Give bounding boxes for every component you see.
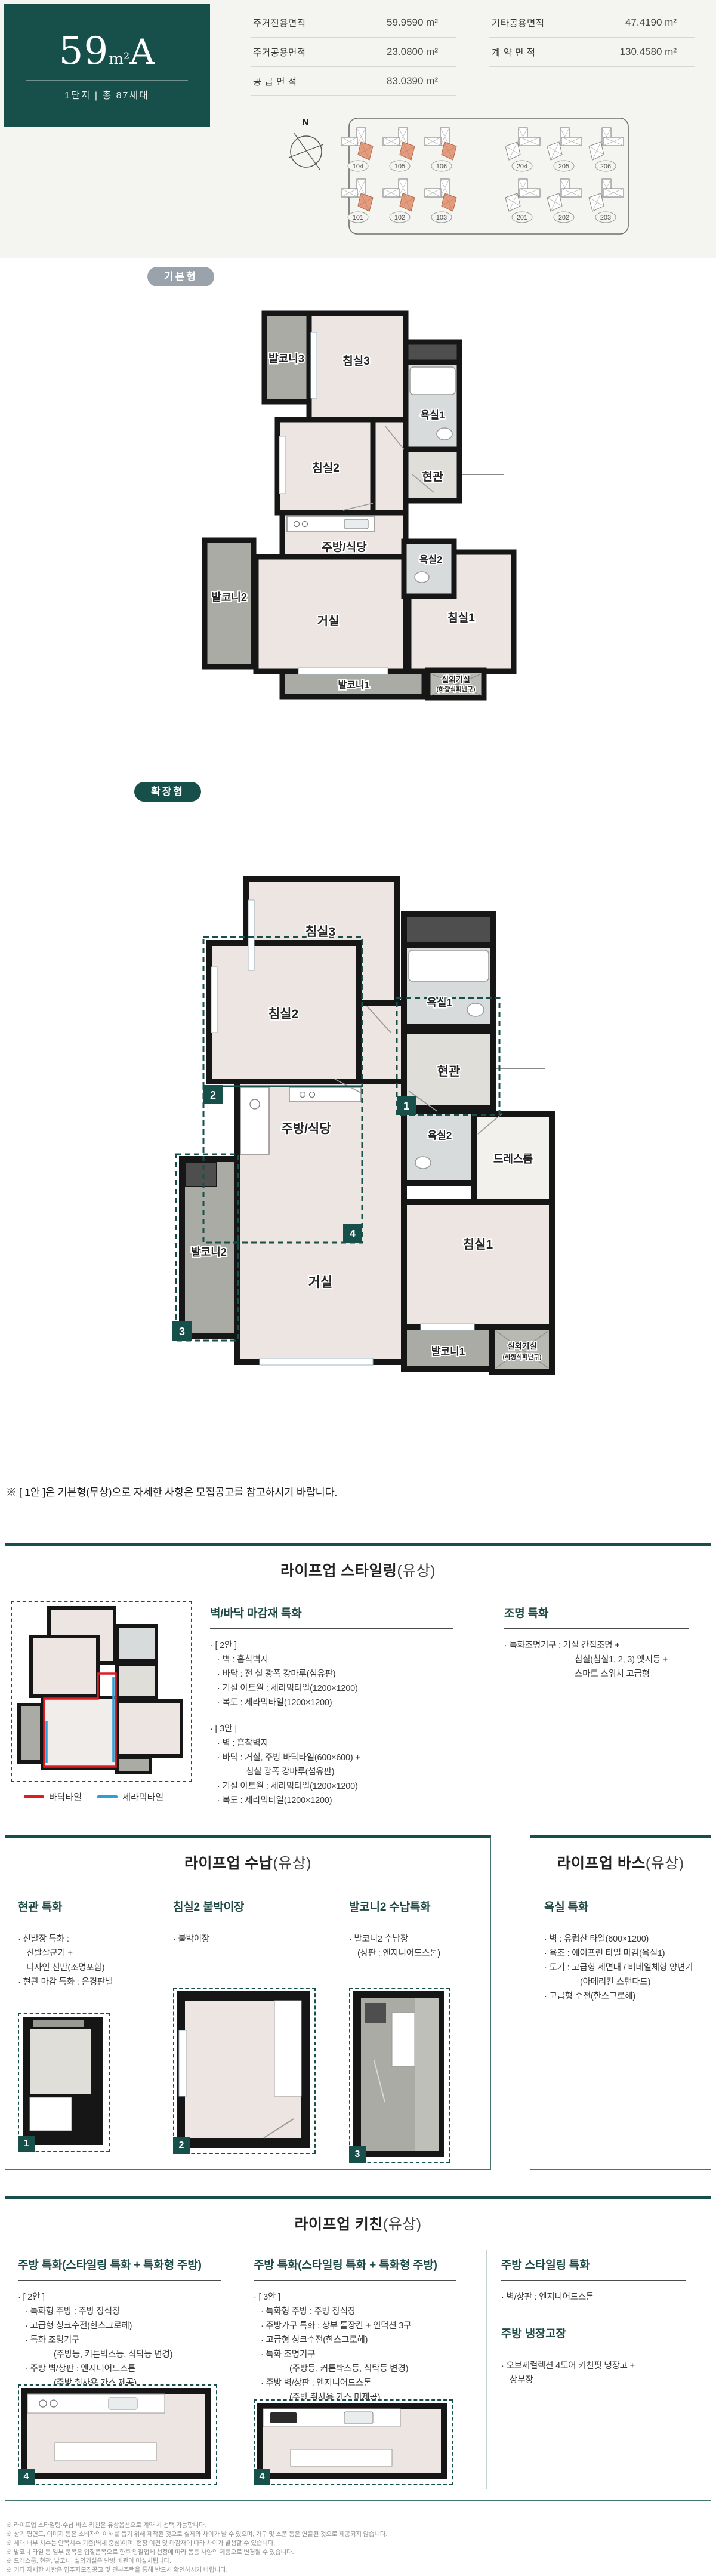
kitchen-col1-miniplan-frame: 4 (18, 2384, 217, 2485)
building-label: 203 (600, 214, 611, 221)
storage-entry-item: 디자인 선반(조명포함) (18, 1961, 155, 1975)
kitchen-col2-item: · 특화 조명기구 (254, 2347, 468, 2362)
bath-title-paren: (유상) (646, 1855, 684, 1872)
area-value: 59.9590 m² (387, 17, 438, 29)
building-label: 102 (394, 214, 405, 221)
unit-area-number: 59 (59, 29, 109, 73)
room-label-bed2: 침실2 (312, 461, 340, 474)
building-label: 105 (394, 163, 405, 170)
storage-entry-miniplan (19, 2014, 106, 2149)
bath-item: (아메리칸 스탠다드) (544, 1975, 702, 1989)
area-value: 23.0800 m² (387, 46, 438, 58)
spacer (501, 2304, 698, 2325)
svg-text:4: 4 (350, 1228, 356, 1240)
floorplan-extended: 2 1 4 3 침실3 욕실1 현관 침실2 주방/식당 욕실2 드레스룸 발코… (170, 853, 558, 1403)
finish-rule (210, 1628, 453, 1629)
kitchen-col1-item: · 특화형 주방 : 주방 장식장 (18, 2304, 227, 2319)
legend-ceramic-tile: 세라믹타일 (97, 1791, 163, 1803)
area-label: 기타공용면적 (492, 16, 545, 29)
building-icon (589, 128, 624, 160)
legend-label: 세라믹타일 (122, 1791, 163, 1803)
storage-balcony-miniplan-frame: 3 (349, 1988, 450, 2163)
storage-title: 라이프업 수납(유상) (5, 1838, 490, 1873)
area-cell: 계 약 면 적 130.4580 m² (489, 38, 695, 67)
storage-entry-rule (18, 1922, 131, 1922)
storage-balcony-miniplan (350, 1989, 446, 2159)
unit-area-unit: m² (109, 50, 129, 68)
lighting-rule (504, 1628, 689, 1629)
building-icon (547, 128, 582, 160)
building-label: 204 (517, 163, 527, 170)
kitchen-fridge-item: · 오브제컬렉션 4도어 키친핏 냉장고 + (501, 2359, 698, 2373)
finish-item: · 복도 : 세라믹타일(1200×1200) (210, 1696, 490, 1710)
room-label-bed3: 침실3 (305, 925, 335, 939)
kitchen-fridge-header: 주방 냉장고장 (501, 2325, 698, 2341)
kitchen-fridge-rule (501, 2349, 686, 2349)
building-icon (505, 179, 540, 211)
room-label-bath2: 욕실2 (428, 1130, 452, 1141)
kitchen-col1-item: (주방등, 커튼박스등, 식탁등 변경) (18, 2347, 227, 2362)
storage-closet-marker: 2 (173, 2137, 190, 2154)
room-label-balcony2: 발코니2 (211, 591, 247, 603)
room-label-bath1: 욕실1 (421, 409, 445, 421)
room-label-bed3: 침실3 (342, 355, 370, 368)
building-icon (425, 128, 456, 160)
bath-header: 욕실 특화 (544, 1898, 702, 1914)
kitchen-col2-item: (주방등, 커튼박스등, 식탁등 변경) (254, 2362, 468, 2376)
kitchen-col2-item: · 주방 벽/상판 : 엔지니어드스톤 (254, 2376, 468, 2390)
option-marker-1: 1 (397, 1096, 416, 1115)
basic-plan-note: ※ [ 1안 ]은 기본형(무상)으로 자세한 사항은 모집공고를 참고하시기 … (6, 1484, 337, 1499)
room-label-living: 거실 (317, 614, 340, 628)
room-label-bed2: 침실2 (268, 1007, 298, 1021)
kitchen-col1-miniplan (19, 2386, 214, 2482)
floor-tile-swatch (24, 1795, 44, 1798)
kitchen-col2-miniplan (255, 2401, 449, 2482)
legend-floor-tile: 바닥타일 (24, 1791, 82, 1803)
storage-balcony-marker: 3 (349, 2146, 366, 2163)
room-label-balcony3: 발코니3 (268, 353, 304, 365)
area-value: 83.0390 m² (387, 75, 438, 87)
building-label: 104 (353, 163, 363, 170)
finish-item: · 거실 아트월 : 세라믹타일(1200×1200) (210, 1779, 490, 1794)
kitchen-title-text: 라이프업 키친 (294, 2216, 382, 2233)
lighting-item: 스마트 스위치 고급형 (504, 1667, 701, 1681)
building-label: 205 (558, 163, 569, 170)
unit-card-divider (26, 80, 188, 81)
footnote: ※ 상기 평면도, 이미지 등은 소비자의 이해를 돕기 위해 제작된 것으로 … (6, 2530, 710, 2539)
building-label: 201 (517, 214, 527, 221)
area-label: 주거전용면적 (253, 16, 306, 29)
room-label-bath1: 욕실1 (427, 997, 452, 1009)
storage-entry-header: 현관 특화 (18, 1898, 155, 1914)
styling-miniplan-frame (11, 1601, 192, 1782)
storage-closet-miniplan-frame: 2 (173, 1988, 316, 2154)
bath-column: 욕실 특화 · 벽 : 유럽산 타일(600×1200) · 욕조 : 에이프런… (544, 1898, 702, 2004)
badge-extended-type: 확장형 (134, 782, 201, 802)
header-band: 59m²A 1단지 | 총 87세대 주거전용면적 59.9590 m² 기타공… (0, 0, 716, 258)
storage-balcony-column: 발코니2 수납특화 · 발코니2 수납장 (상판 : 엔지니어드스톤) (349, 1898, 483, 1961)
styling-title: 라이프업 스타일링(유상) (5, 1546, 711, 1580)
styling-miniplan (12, 1602, 189, 1779)
area-value: 47.4190 m² (625, 17, 677, 29)
legend-label: 바닥타일 (49, 1791, 82, 1803)
area-label: 주거공용면적 (253, 45, 306, 58)
footnote: ※ 드레스룸, 현관, 발코니, 실외기실은 난방 배관이 미설치됩니다. (6, 2557, 710, 2566)
site-plan: N 104 105 106 (286, 115, 711, 249)
kitchen-col1-marker: 4 (18, 2469, 35, 2485)
building-icon (425, 179, 456, 211)
building-label: 106 (436, 163, 447, 170)
kitchen-col1-item: · 주방 벽/상판 : 엔지니어드스톤 (18, 2362, 227, 2376)
kitchen-styling-rule (501, 2280, 686, 2281)
building-icon (383, 128, 415, 160)
lighting-header: 조명 특화 (504, 1604, 701, 1620)
room-label-entry: 현관 (422, 470, 443, 483)
bath-title-text: 라이프업 바스 (557, 1855, 645, 1872)
unit-type-letter: A (129, 32, 155, 72)
kitchen-col1-item: · 고급형 싱크수전(한스그로헤) (18, 2319, 227, 2333)
room-label-balcony2: 발코니2 (191, 1246, 227, 1258)
styling-title-text: 라이프업 스타일링 (280, 1563, 397, 1579)
unit-subtitle: 1단지 | 총 87세대 (4, 87, 210, 101)
kitchen-col1-header: 주방 특화(스타일링 특화 + 특화형 주방) (18, 2256, 227, 2272)
building-icon (341, 179, 373, 211)
lighting-item: 침실(침실1, 2, 3) 엣지등 + (504, 1653, 701, 1667)
storage-balcony-rule (349, 1922, 462, 1922)
room-label-bed1: 침실1 (463, 1238, 493, 1252)
floorplan-basic: 발코니3 침실3 욕실1 현관 침실2 주방/식당 욕실2 발코니2 거실 침실… (194, 295, 528, 701)
building-icon (547, 179, 582, 211)
footnote: ※ 기타 자세한 사항은 입주자모집공고 및 견본주택을 통해 반드시 확인하시… (6, 2566, 710, 2575)
kitchen-title-paren: (유상) (383, 2216, 422, 2233)
area-table-row: 주거공용면적 23.0800 m² 계 약 면 적 130.4580 m² (251, 38, 695, 67)
building-label: 101 (353, 214, 363, 221)
kitchen-col2-miniplan-frame: 4 (254, 2399, 453, 2485)
area-cell: 공 급 면 적 83.0390 m² (251, 67, 456, 96)
kitchen-col3: 주방 스타일링 특화 · 벽/상판 : 엔지니어드스톤 주방 냉장고장 · 오브… (501, 2256, 698, 2387)
styling-title-paren: (유상) (397, 1563, 436, 1579)
finish-item: · 바닥 : 전 실 광폭 강마루(섬유판) (210, 1667, 490, 1681)
room-label-bed1: 침실1 (447, 611, 475, 624)
storage-closet-header: 침실2 붙박이장 (173, 1898, 310, 1914)
finish-item: · 복도 : 세라믹타일(1200×1200) (210, 1794, 490, 1808)
kitchen-col2-rule (254, 2280, 456, 2281)
finish-column: 벽/바닥 마감재 특화 · [ 2안 ] · 벽 : 흡착벽지 · 바닥 : 전… (210, 1604, 490, 1808)
finish-header: 벽/바닥 마감재 특화 (210, 1604, 490, 1620)
area-table-row: 공 급 면 적 83.0390 m² (251, 67, 695, 96)
building-label: 202 (558, 214, 569, 221)
kitchen-col-divider (242, 2250, 242, 2489)
tile-legend: 바닥타일 세라믹타일 (24, 1791, 163, 1803)
kitchen-col1-rule (18, 2280, 221, 2281)
area-table: 주거전용면적 59.9590 m² 기타공용면적 47.4190 m² 주거공용… (251, 8, 695, 96)
storage-balcony-header: 발코니2 수납특화 (349, 1898, 483, 1914)
area-label: 공 급 면 적 (253, 75, 297, 88)
storage-entry-item: · 현관 마감 특화 : 은경판넬 (18, 1975, 155, 1989)
finish-item: · 벽 : 흡착벽지 (210, 1736, 490, 1751)
storage-closet-rule (173, 1922, 286, 1922)
storage-title-paren: (유상) (273, 1855, 311, 1872)
kitchen-col2-header: 주방 특화(스타일링 특화 + 특화형 주방) (254, 2256, 468, 2272)
option-marker-3: 3 (172, 1321, 192, 1341)
svg-text:3: 3 (179, 1326, 185, 1338)
building-label: 103 (436, 214, 447, 221)
compass-icon: N (289, 118, 323, 170)
storage-entry-item: · 신발장 특화 : (18, 1932, 155, 1946)
footnote: ※ 발코니 타일 등 일부 품목은 입찰품목으로 향후 입찰업체 선정에 따라 … (6, 2548, 710, 2557)
building-icon (589, 179, 624, 211)
finish-item: · 벽 : 흡착벽지 (210, 1653, 490, 1667)
area-value: 130.4580 m² (620, 46, 677, 58)
storage-entry-marker: 1 (18, 2136, 35, 2152)
bath-item: · 도기 : 고급형 세면대 / 비데일체형 양변기 (544, 1961, 702, 1975)
kitchen-title: 라이프업 키친(유상) (5, 2199, 711, 2234)
unit-summary-card: 59m²A 1단지 | 총 87세대 (4, 4, 210, 127)
area-cell: 기타공용면적 47.4190 m² (489, 8, 695, 38)
finish-item: · 거실 아트월 : 세라믹타일(1200×1200) (210, 1681, 490, 1696)
storage-closet-column: 침실2 붙박이장 · 붙박이장 (173, 1898, 310, 1946)
building-icon (383, 179, 415, 211)
room-label-balcony1: 발코니1 (338, 680, 369, 691)
badge-basic-type: 기본형 (147, 267, 214, 286)
finish-item: · [ 2안 ] (210, 1638, 490, 1653)
svg-text:2: 2 (210, 1089, 216, 1101)
kitchen-col1-item: · 특화 조명기구 (18, 2333, 227, 2347)
room-label-living: 거실 (308, 1275, 332, 1290)
svg-text:1: 1 (403, 1100, 409, 1112)
bath-rule (544, 1922, 693, 1922)
bath-item: · 고급형 수전(한스그로헤) (544, 1989, 702, 2004)
storage-entry-miniplan-frame: 1 (18, 2013, 110, 2152)
storage-closet-miniplan (174, 1989, 312, 2150)
footnote: ※ 세대 내부 치수는 안목치수 기준(벽체 중심)이며, 현장 여건 및 마감… (6, 2539, 710, 2548)
room-label-entry: 현관 (437, 1065, 461, 1079)
area-cell-empty (489, 67, 695, 96)
kitchen-col1-item: · [ 2안 ] (18, 2290, 227, 2304)
storage-closet-item: · 붙박이장 (173, 1932, 310, 1946)
finish-item: 침실 광폭 강마루(섬유판) (210, 1765, 490, 1779)
room-label-bath2: 욕실2 (419, 554, 442, 565)
storage-entry-item: 신발살균기 + (18, 1946, 155, 1961)
kitchen-fridge-item: 상부장 (501, 2373, 698, 2387)
kitchen-col1: 주방 특화(스타일링 특화 + 특화형 주방) · [ 2안 ] · 특화형 주… (18, 2256, 227, 2390)
area-cell: 주거전용면적 59.9590 m² (251, 8, 456, 38)
room-label-balcony1: 발코니1 (431, 1346, 465, 1357)
kitchen-col2: 주방 특화(스타일링 특화 + 특화형 주방) · [ 3안 ] · 특화형 주… (254, 2256, 468, 2405)
bath-item: · 벽 : 유럽산 타일(600×1200) (544, 1932, 702, 1946)
option-marker-4: 4 (343, 1224, 362, 1243)
area-table-row: 주거전용면적 59.9590 m² 기타공용면적 47.4190 m² (251, 8, 695, 38)
lighting-column: 조명 특화 · 특화조명기구 : 거실 간접조명 + 침실(침실1, 2, 3)… (504, 1604, 701, 1681)
footnotes: ※ 라이프업 스타일링·수납·바스·키친은 유상옵션으로 계약 시 선택 가능합… (6, 2521, 710, 2575)
building-icon (341, 128, 373, 160)
kitchen-styling-item: · 벽/상판 : 엔지니어드스톤 (501, 2290, 698, 2304)
area-label: 계 약 면 적 (492, 45, 535, 58)
storage-title-text: 라이프업 수납 (184, 1855, 273, 1872)
bath-title: 라이프업 바스(유상) (530, 1838, 711, 1873)
kitchen-col-divider (486, 2250, 487, 2489)
room-label-kitchen: 주방/식당 (322, 541, 367, 554)
building-label: 206 (600, 163, 611, 170)
kitchen-col2-item: · 주방가구 특화 : 상부 톨장칸 + 인덕션 3구 (254, 2319, 468, 2333)
storage-balcony-item: · 발코니2 수납장 (349, 1932, 483, 1946)
option-marker-2: 2 (203, 1085, 223, 1104)
room-label-kitchen: 주방/식당 (281, 1122, 331, 1136)
lighting-item: · 특화조명기구 : 거실 간접조명 + (504, 1638, 701, 1653)
kitchen-col2-item: · 고급형 싱크수전(한스그로헤) (254, 2333, 468, 2347)
room-label-outdoor-unit-sub: (하향식피난구) (503, 1353, 542, 1361)
ceramic-tile-swatch (97, 1795, 118, 1798)
storage-balcony-item: (상판 : 엔지니어드스톤) (349, 1946, 483, 1961)
brochure-page: 59m²A 1단지 | 총 87세대 주거전용면적 59.9590 m² 기타공… (0, 0, 716, 2576)
finish-item: · 바닥 : 거실, 주방 바닥타일(600×600) + (210, 1751, 490, 1765)
kitchen-col2-marker: 4 (254, 2469, 270, 2485)
storage-entry-column: 현관 특화 · 신발장 특화 : 신발살균기 + 디자인 선반(조명포함) · … (18, 1898, 155, 1989)
finish-item: · [ 3안 ] (210, 1722, 490, 1736)
footnote: ※ 라이프업 스타일링·수납·바스·키친은 유상옵션으로 계약 시 선택 가능합… (6, 2521, 710, 2530)
kitchen-styling-header: 주방 스타일링 특화 (501, 2256, 698, 2272)
building-icon (505, 128, 540, 160)
area-cell: 주거공용면적 23.0800 m² (251, 38, 456, 67)
room-label-outdoor-unit-sub: (하향식피난구) (437, 685, 476, 693)
kitchen-col2-item: · [ 3안 ] (254, 2290, 468, 2304)
unit-title: 59m²A (4, 32, 210, 70)
kitchen-col2-item: · 특화형 주방 : 주방 장식장 (254, 2304, 468, 2319)
room-label-outdoor-unit: 실외기실 (442, 675, 470, 684)
bath-item: · 욕조 : 에이프런 타일 마감(욕실1) (544, 1946, 702, 1961)
room-label-outdoor-unit: 실외기실 (507, 1341, 537, 1351)
compass-north-label: N (302, 118, 309, 128)
room-label-dress: 드레스룸 (493, 1153, 533, 1165)
